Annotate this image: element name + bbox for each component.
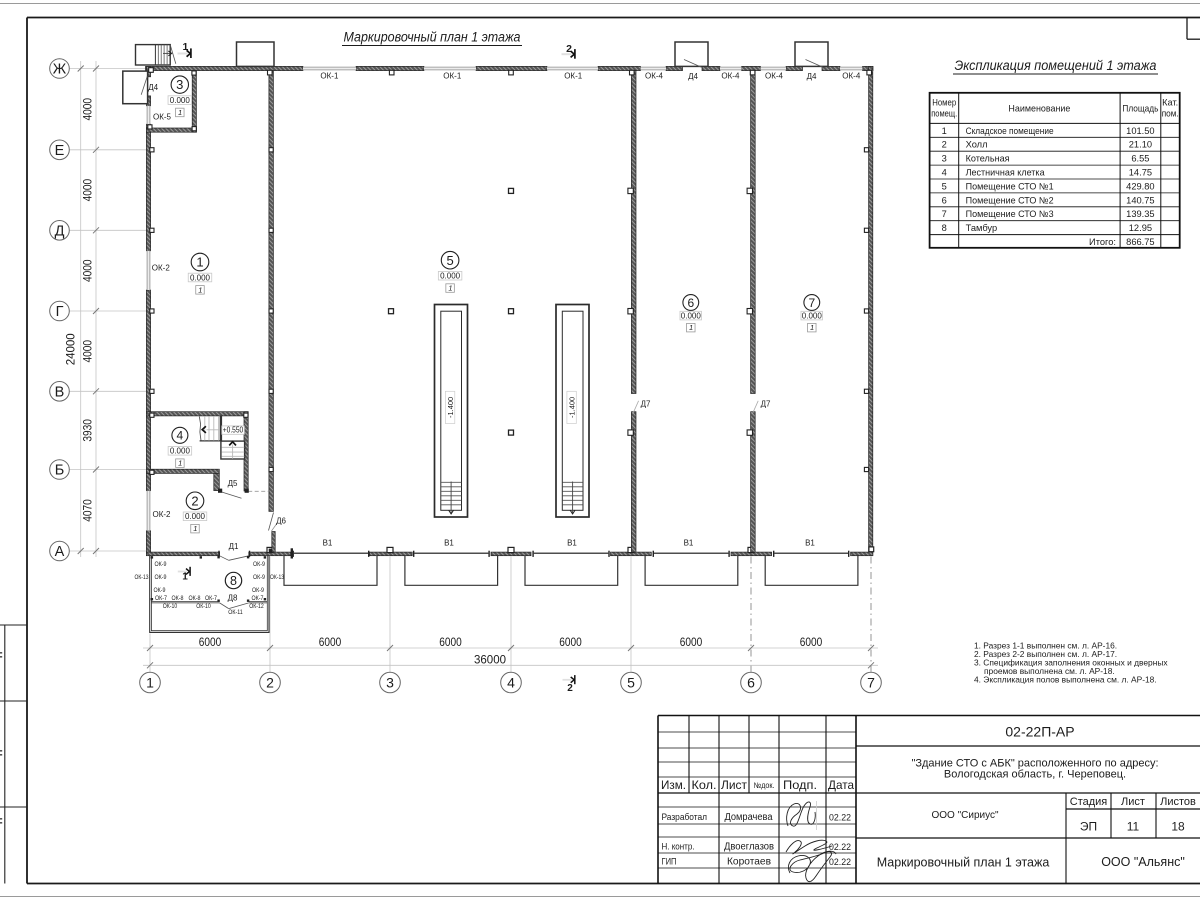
svg-text:ОК-7: ОК-7 bbox=[155, 595, 167, 602]
svg-text:14.75: 14.75 bbox=[1129, 168, 1152, 178]
svg-text:Помещение СТО №3: Помещение СТО №3 bbox=[966, 209, 1054, 219]
svg-text:ОК-9: ОК-9 bbox=[155, 561, 167, 568]
svg-text:Ж: Ж bbox=[53, 62, 67, 78]
svg-text:1: 1 bbox=[178, 108, 182, 117]
svg-text:ОК-10: ОК-10 bbox=[163, 603, 178, 610]
svg-text:36000: 36000 bbox=[474, 653, 506, 667]
svg-text:ОК-1: ОК-1 bbox=[564, 72, 583, 81]
svg-text:Г: Г bbox=[56, 304, 64, 320]
svg-text:5: 5 bbox=[627, 675, 635, 691]
svg-text:429.80: 429.80 bbox=[1126, 181, 1154, 191]
svg-text:В1: В1 bbox=[444, 538, 454, 547]
svg-text:18: 18 bbox=[1171, 820, 1185, 834]
svg-text:Подп.: Подп. bbox=[783, 778, 817, 792]
svg-text:24000: 24000 bbox=[64, 333, 78, 365]
svg-text:0.000: 0.000 bbox=[170, 447, 191, 456]
svg-text:Б: Б bbox=[55, 463, 65, 479]
svg-text:ОК-4: ОК-4 bbox=[645, 72, 664, 81]
svg-text:Кат.: Кат. bbox=[1162, 98, 1178, 108]
svg-text:Д8: Д8 bbox=[228, 593, 238, 602]
svg-text:6000: 6000 bbox=[319, 635, 342, 649]
svg-text:Изм.: Изм. bbox=[661, 778, 686, 792]
svg-text:помещ.: помещ. bbox=[931, 109, 957, 119]
svg-text:ОК-12: ОК-12 bbox=[249, 603, 264, 610]
svg-text:Маркировочный план 1 этажа: Маркировочный план 1 этажа bbox=[877, 856, 1050, 870]
svg-text:1: 1 bbox=[193, 524, 197, 533]
svg-text:-1.400: -1.400 bbox=[446, 397, 455, 418]
svg-text:8: 8 bbox=[942, 223, 947, 233]
svg-text:6: 6 bbox=[942, 195, 947, 205]
svg-text:Д5: Д5 bbox=[228, 479, 238, 488]
svg-text:ОК-9: ОК-9 bbox=[252, 587, 264, 594]
svg-text:7: 7 bbox=[808, 296, 815, 310]
svg-text:Тамбур: Тамбур bbox=[966, 223, 998, 233]
svg-text:ОК-1: ОК-1 bbox=[443, 72, 462, 81]
svg-text:Листов: Листов bbox=[1160, 796, 1196, 808]
svg-text:Номер: Номер bbox=[932, 98, 956, 108]
svg-text:№док.: №док. bbox=[754, 781, 775, 790]
svg-text:ОК-5: ОК-5 bbox=[153, 113, 172, 122]
svg-text:ОК-9: ОК-9 bbox=[253, 561, 265, 568]
svg-text:Площадь: Площадь bbox=[1122, 104, 1158, 114]
svg-text:6000: 6000 bbox=[680, 635, 703, 649]
svg-text:4000: 4000 bbox=[81, 259, 95, 282]
svg-text:Экспликация помещений 1 этажа: Экспликация помещений 1 этажа bbox=[955, 58, 1157, 73]
svg-text:4. Экспликация полов выполнена: 4. Экспликация полов выполнена см. л. АР… bbox=[974, 674, 1157, 684]
svg-text:0.000: 0.000 bbox=[681, 311, 702, 320]
svg-text:0.000: 0.000 bbox=[190, 273, 211, 282]
svg-text:Д: Д bbox=[55, 223, 65, 239]
svg-text:4: 4 bbox=[942, 168, 947, 178]
svg-text:1: 1 bbox=[196, 255, 203, 270]
svg-text:ОК-9: ОК-9 bbox=[253, 574, 265, 581]
svg-text:Разработал: Разработал bbox=[662, 812, 708, 822]
svg-text:Д6: Д6 bbox=[276, 516, 286, 525]
svg-text:ОК-2: ОК-2 bbox=[153, 510, 172, 519]
svg-text:6000: 6000 bbox=[559, 635, 582, 649]
svg-text:В1: В1 bbox=[805, 538, 815, 547]
svg-text:ОК-7: ОК-7 bbox=[252, 595, 264, 602]
svg-text:ОК-13: ОК-13 bbox=[135, 574, 149, 581]
svg-text:ЭП: ЭП bbox=[1080, 820, 1097, 834]
svg-text:+0.550: +0.550 bbox=[223, 426, 244, 435]
svg-text:А: А bbox=[55, 544, 65, 560]
svg-text:Лист: Лист bbox=[1121, 796, 1145, 808]
svg-text:3930: 3930 bbox=[81, 419, 95, 442]
svg-text:Помещение СТО №2: Помещение СТО №2 bbox=[966, 195, 1054, 205]
svg-text:Кол.: Кол. bbox=[692, 778, 717, 792]
svg-text:6000: 6000 bbox=[800, 635, 823, 649]
svg-text:11: 11 bbox=[1127, 820, 1140, 834]
svg-text:В1: В1 bbox=[323, 538, 333, 547]
svg-text:5: 5 bbox=[446, 253, 453, 268]
svg-text:0.000: 0.000 bbox=[802, 311, 823, 320]
svg-text:1: 1 bbox=[448, 284, 452, 293]
svg-text:Стадия: Стадия bbox=[1070, 796, 1108, 808]
svg-text:2: 2 bbox=[191, 493, 198, 508]
svg-text:ООО "Сириус": ООО "Сириус" bbox=[931, 810, 999, 821]
svg-text:12.95: 12.95 bbox=[1129, 223, 1152, 233]
svg-text:4070: 4070 bbox=[81, 499, 95, 522]
svg-text:0.000: 0.000 bbox=[185, 512, 206, 521]
svg-text:пом.: пом. bbox=[1162, 109, 1179, 119]
svg-text:ОК-11: ОК-11 bbox=[228, 609, 243, 616]
svg-text:02-22П-АР: 02-22П-АР bbox=[1005, 724, 1074, 740]
svg-text:В: В bbox=[55, 384, 65, 400]
svg-text:8: 8 bbox=[230, 574, 237, 588]
svg-text:6: 6 bbox=[687, 296, 694, 310]
svg-text:Д4: Д4 bbox=[807, 72, 817, 81]
svg-text:Котельная: Котельная bbox=[966, 154, 1010, 164]
svg-text:ОК-13: ОК-13 bbox=[270, 574, 284, 581]
svg-text:101.50: 101.50 bbox=[1126, 126, 1154, 136]
svg-text:Д1: Д1 bbox=[229, 542, 239, 551]
svg-text:Двоеглазов: Двоеглазов bbox=[724, 842, 774, 853]
svg-text:Лестничная клетка: Лестничная клетка bbox=[966, 168, 1046, 178]
svg-text:4000: 4000 bbox=[81, 340, 95, 363]
svg-text:ОК-9: ОК-9 bbox=[155, 574, 167, 581]
svg-text:0.000: 0.000 bbox=[170, 96, 191, 105]
svg-text:ОК-4: ОК-4 bbox=[721, 72, 740, 81]
svg-text:Помещение СТО №1: Помещение СТО №1 bbox=[966, 181, 1054, 191]
svg-text:2: 2 bbox=[942, 140, 947, 150]
svg-text:02.22: 02.22 bbox=[829, 842, 851, 852]
svg-text:0.000: 0.000 bbox=[440, 272, 461, 281]
svg-text:Холл: Холл bbox=[966, 140, 988, 150]
svg-text:4000: 4000 bbox=[81, 179, 95, 202]
svg-text:4: 4 bbox=[177, 429, 184, 443]
svg-text:6000: 6000 bbox=[439, 635, 462, 649]
svg-text:6.55: 6.55 bbox=[1131, 154, 1149, 164]
svg-text:Д7: Д7 bbox=[761, 399, 771, 408]
svg-text:3: 3 bbox=[942, 154, 947, 164]
svg-text:Е: Е bbox=[55, 143, 65, 159]
svg-text:В1: В1 bbox=[567, 538, 577, 547]
svg-text:2: 2 bbox=[266, 675, 274, 691]
svg-text:139.35: 139.35 bbox=[1126, 209, 1154, 219]
svg-text:1: 1 bbox=[689, 323, 693, 332]
svg-text:Д4: Д4 bbox=[148, 83, 158, 92]
svg-text:ОК-9: ОК-9 bbox=[154, 587, 166, 594]
svg-text:02.22: 02.22 bbox=[829, 857, 851, 867]
svg-text:Маркировочный план 1 этажа: Маркировочный план 1 этажа bbox=[344, 30, 521, 45]
svg-text:В1: В1 bbox=[684, 538, 694, 547]
svg-text:6: 6 bbox=[747, 675, 755, 691]
svg-text:3: 3 bbox=[386, 675, 394, 691]
svg-text:ОК-4: ОК-4 bbox=[842, 72, 861, 81]
svg-text:1: 1 bbox=[146, 675, 154, 691]
svg-text:02.22: 02.22 bbox=[829, 813, 851, 823]
svg-text:7: 7 bbox=[942, 209, 947, 219]
svg-text:Итого:: Итого: bbox=[1089, 237, 1116, 247]
svg-text:140.75: 140.75 bbox=[1126, 195, 1154, 205]
svg-text:3: 3 bbox=[176, 77, 183, 92]
svg-text:1: 1 bbox=[942, 126, 947, 136]
svg-text:Д4: Д4 bbox=[688, 72, 698, 81]
svg-text:4000: 4000 bbox=[81, 98, 95, 121]
svg-text:866.75: 866.75 bbox=[1126, 237, 1154, 247]
svg-text:Д7: Д7 bbox=[641, 399, 651, 408]
svg-text:Вологодская область, г. Черепо: Вологодская область, г. Череповец. bbox=[944, 769, 1126, 781]
svg-text:Коротаев: Коротаев bbox=[727, 857, 771, 868]
svg-text:ОК-7: ОК-7 bbox=[205, 595, 217, 602]
svg-text:1: 1 bbox=[198, 285, 202, 294]
svg-text:ОК-4: ОК-4 bbox=[765, 72, 784, 81]
svg-text:ОК-10: ОК-10 bbox=[196, 603, 211, 610]
svg-text:5: 5 bbox=[942, 181, 947, 191]
svg-text:Н. контр.: Н. контр. bbox=[662, 842, 695, 852]
svg-text:4: 4 bbox=[507, 675, 515, 691]
svg-text:Домрачева: Домрачева bbox=[725, 812, 773, 823]
svg-text:ОК-8: ОК-8 bbox=[189, 595, 201, 602]
svg-text:ОК-1: ОК-1 bbox=[320, 72, 339, 81]
svg-text:7: 7 bbox=[867, 675, 875, 691]
svg-text:ОК-8: ОК-8 bbox=[172, 595, 184, 602]
svg-text:Лист: Лист bbox=[721, 778, 747, 792]
svg-text:Дата: Дата bbox=[828, 778, 854, 792]
svg-text:ОК-2: ОК-2 bbox=[152, 263, 171, 272]
svg-text:1: 1 bbox=[810, 323, 814, 332]
svg-text:Наименование: Наименование bbox=[1008, 104, 1070, 114]
svg-text:-1.400: -1.400 bbox=[568, 397, 577, 418]
svg-text:Складское помещение: Складское помещение bbox=[966, 126, 1054, 136]
svg-text:6000: 6000 bbox=[199, 635, 222, 649]
svg-text:ГИП: ГИП bbox=[662, 857, 677, 867]
svg-text:ООО "Альянс": ООО "Альянс" bbox=[1101, 855, 1185, 869]
svg-text:2: 2 bbox=[567, 683, 573, 694]
svg-text:21.10: 21.10 bbox=[1129, 140, 1152, 150]
svg-text:1: 1 bbox=[178, 459, 182, 468]
